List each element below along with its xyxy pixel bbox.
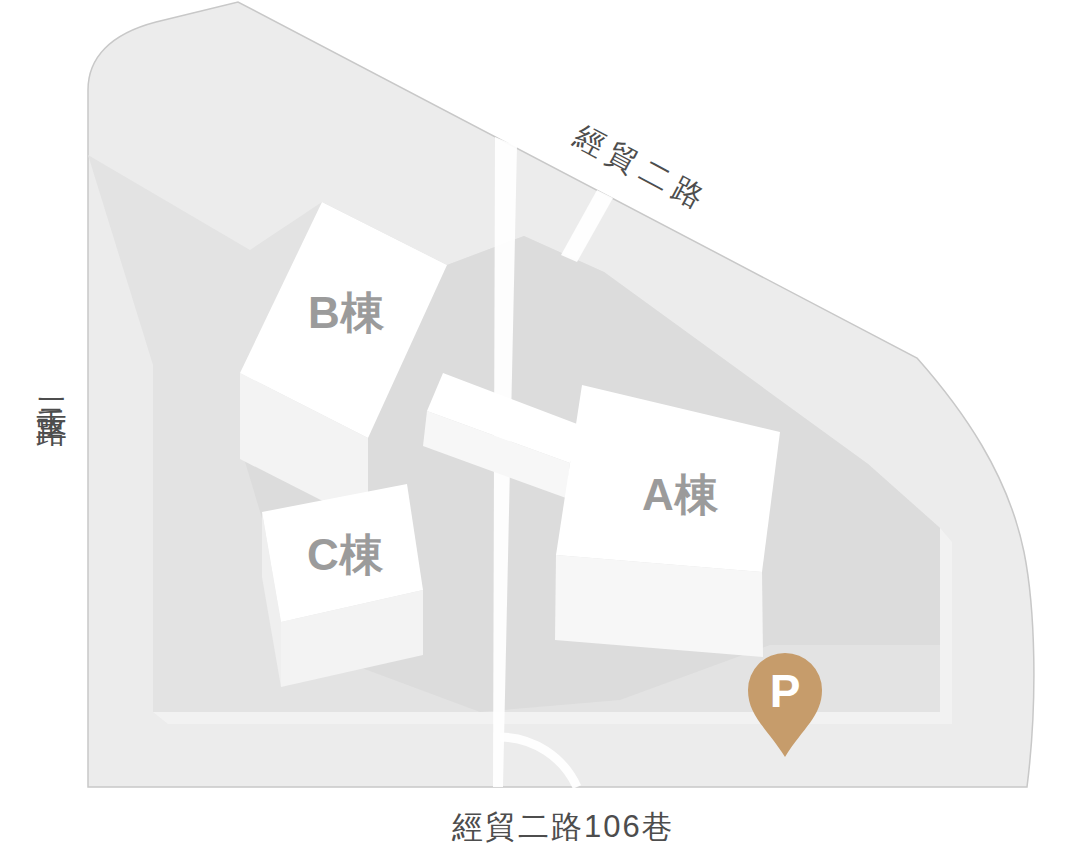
site-map: 經貿二路 三重路 經貿二路106巷 B棟 A棟 C棟 P <box>0 0 1090 850</box>
building-a-side <box>555 555 763 657</box>
building-a-label: A棟 <box>642 466 720 525</box>
map-canvas <box>0 0 1090 850</box>
parking-pin-label: P <box>745 664 825 718</box>
street-label-bottom: 經貿二路106巷 <box>452 806 675 848</box>
street-label-left: 三重路 <box>30 374 72 401</box>
building-b-label: B棟 <box>308 284 386 343</box>
building-c-label: C棟 <box>307 526 385 585</box>
